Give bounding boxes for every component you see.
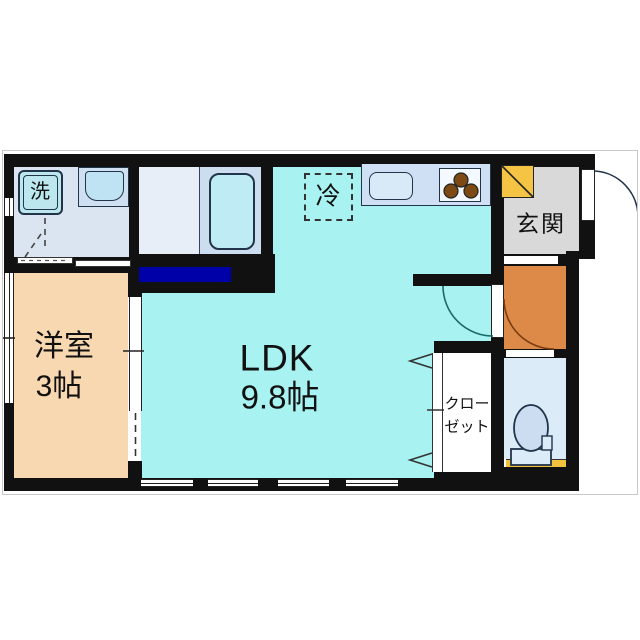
wall-closet-right bbox=[491, 353, 504, 479]
kitchen-sink bbox=[369, 172, 413, 200]
wall-closet-bottom bbox=[434, 472, 504, 479]
wall-toilet-bottom bbox=[504, 467, 566, 479]
closet-floor bbox=[443, 353, 491, 472]
floor-plan-image: 洗 冷 玄関 洋室 3帖 LDK 9.8帖 クロー ゼット bbox=[0, 0, 640, 640]
bathroom-step-counter bbox=[139, 267, 231, 282]
window-ldk-2 bbox=[208, 479, 258, 487]
window-ldk-3 bbox=[278, 479, 329, 487]
window-ldk-4 bbox=[346, 479, 398, 487]
entrance-corridor-opening bbox=[504, 256, 558, 264]
bathroom-divider-line bbox=[199, 167, 200, 254]
stove-burners-icon bbox=[440, 169, 482, 203]
ldk-corridor-door-leaf bbox=[491, 284, 504, 338]
closet-label-line1: クロー bbox=[444, 397, 489, 412]
wall-divider-bottom bbox=[128, 461, 142, 491]
ldk-size-label: 9.8帖 bbox=[241, 381, 320, 414]
closet-folding-door-track bbox=[432, 353, 443, 472]
wall-right-lower bbox=[566, 251, 579, 491]
washroom-sliding-door-panel-1 bbox=[17, 257, 73, 264]
western-room-size-label: 3帖 bbox=[36, 372, 83, 402]
window-western-room bbox=[4, 273, 14, 403]
window-washroom bbox=[4, 198, 14, 216]
washing-machine-label: 洗 bbox=[30, 182, 50, 202]
wall-washroom-bathroom bbox=[129, 154, 139, 259]
stove-icon bbox=[439, 168, 481, 202]
toilet-room-floor bbox=[504, 358, 566, 459]
washroom-sliding-door-panel-2 bbox=[75, 260, 131, 267]
refrigerator-label: 冷 bbox=[315, 185, 340, 210]
washroom-sink-basin bbox=[85, 171, 124, 201]
entrance-door-leaf bbox=[581, 169, 595, 221]
wall-closet-top bbox=[434, 341, 504, 353]
window-ldk-1 bbox=[141, 479, 193, 487]
western-room-label: 洋室 bbox=[34, 332, 94, 362]
bathtub bbox=[209, 173, 255, 250]
entrance-label: 玄関 bbox=[516, 213, 566, 236]
bathroom-floor bbox=[139, 167, 199, 254]
toilet-doorway bbox=[506, 350, 554, 357]
washroom-sink bbox=[78, 167, 129, 207]
corridor-floor bbox=[504, 265, 566, 349]
floor-plan-frame: 洗 冷 玄関 洋室 3帖 LDK 9.8帖 クロー ゼット bbox=[2, 150, 638, 495]
shoe-cabinet bbox=[501, 165, 534, 198]
closet-label-line2: ゼット bbox=[444, 420, 489, 435]
ldk-label: LDK bbox=[240, 340, 315, 377]
entrance-door-swing-arc bbox=[595, 171, 637, 217]
wall-ldk-stub bbox=[413, 274, 493, 286]
western-room-sliding-door bbox=[129, 297, 142, 411]
